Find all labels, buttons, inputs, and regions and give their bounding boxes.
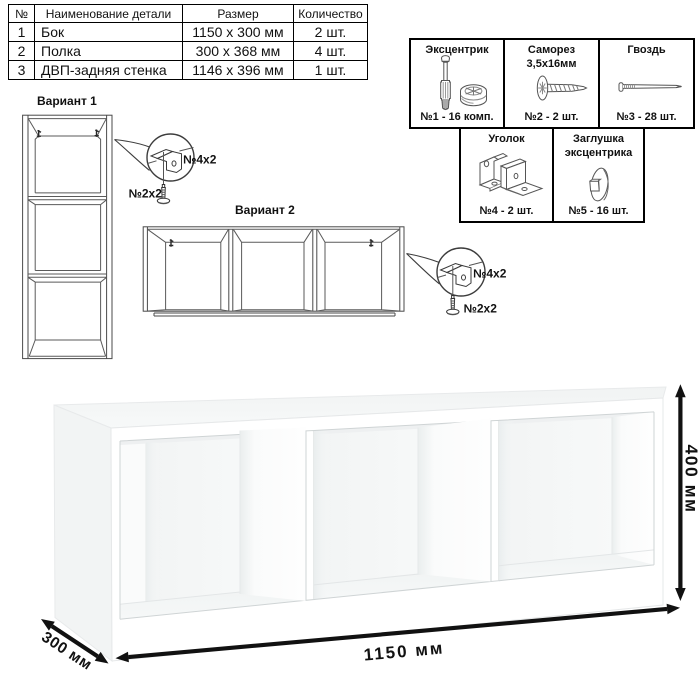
svg-text:1150 мм: 1150 мм — [363, 638, 445, 664]
svg-text:№2х2: №2х2 — [129, 187, 163, 201]
svg-text:№2х2: №2х2 — [464, 302, 498, 316]
svg-text:№4х2: №4х2 — [473, 267, 507, 281]
svg-text:400 мм: 400 мм — [682, 445, 700, 514]
svg-text:№4х2: №4х2 — [183, 153, 217, 167]
